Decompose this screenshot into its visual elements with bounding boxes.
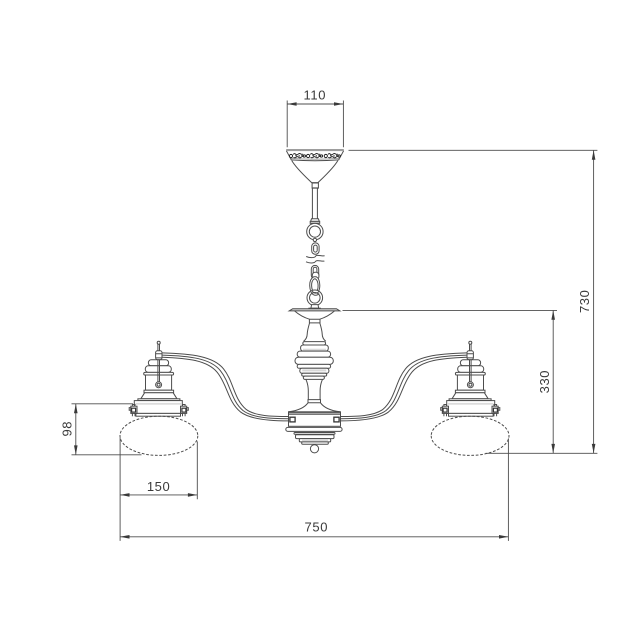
svg-text:98: 98 xyxy=(60,421,75,437)
svg-text:330: 330 xyxy=(537,370,552,394)
svg-text:110: 110 xyxy=(304,88,327,103)
svg-text:150: 150 xyxy=(147,479,171,494)
svg-text:730: 730 xyxy=(577,290,592,314)
svg-text:750: 750 xyxy=(305,519,329,534)
